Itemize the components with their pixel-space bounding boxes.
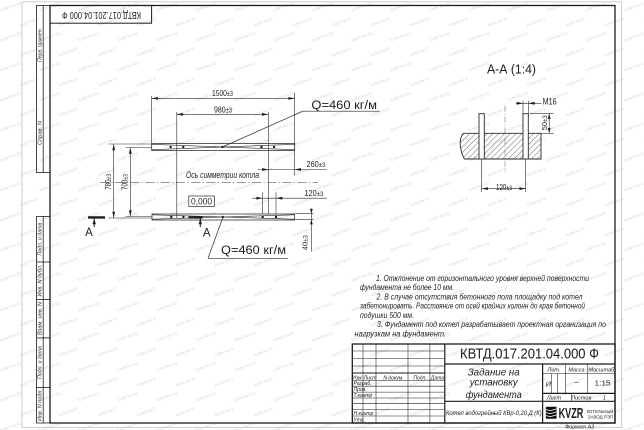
svg-text:Подп. и дата: Подп. и дата [37, 346, 43, 379]
svg-text:Т.контр: Т.контр [354, 393, 373, 399]
svg-text:И: И [546, 380, 552, 389]
svg-text:забетонировать. Расстояние от: забетонировать. Расстояние от осей крайн… [359, 302, 585, 311]
svg-text:Лит.: Лит. [547, 367, 561, 373]
svg-text:подушки 500 мм.: подушки 500 мм. [360, 311, 414, 320]
svg-text:Листов: Листов [570, 396, 591, 402]
svg-text:Лист: Лист [546, 396, 562, 402]
svg-text:2. В случае отсутствия бетонно: 2. В случае отсутствия бетонного пола пл… [376, 292, 583, 301]
svg-text:Масса: Масса [568, 367, 584, 373]
svg-text:Подп. и дата: Подп. и дата [37, 222, 43, 255]
svg-text:Инв. N подл.: Инв. N подл. [37, 389, 43, 421]
svg-text:Подп.: Подп. [413, 375, 426, 381]
svg-text:А-А (1:4): А-А (1:4) [487, 61, 536, 76]
svg-text:50±3: 50±3 [540, 115, 549, 131]
svg-text:Справ. N: Справ. N [37, 121, 43, 145]
svg-text:1. Отклонение от горизонтально: 1. Отклонение от горизонтального уровня … [376, 274, 590, 283]
svg-text:Утв.: Утв. [354, 417, 365, 423]
svg-text:Перв. примен.: Перв. примен. [37, 28, 43, 62]
svg-text:фундамента: фундамента [466, 389, 522, 401]
svg-text:А: А [203, 228, 211, 240]
svg-text:KVZR: KVZR [559, 406, 584, 422]
svg-text:N докум.: N докум. [383, 375, 403, 381]
svg-text:700±3: 700±3 [121, 174, 130, 190]
svg-text:А: А [85, 227, 93, 239]
svg-text:120±3: 120±3 [304, 189, 323, 198]
svg-text:КВТД.017.201.04.000 Ф: КВТД.017.201.04.000 Ф [460, 346, 599, 363]
svg-text:Взам. инв. N: Взам. инв. N [37, 302, 43, 335]
svg-text:Формат А3: Формат А3 [565, 425, 595, 430]
svg-text:1:15: 1:15 [595, 381, 611, 388]
svg-text:40±3: 40±3 [301, 235, 310, 251]
svg-text:ЗАВОД РЭП: ЗАВОД РЭП [588, 414, 614, 420]
svg-text:установку: установку [469, 376, 519, 388]
svg-text:Масштаб: Масштаб [588, 367, 615, 373]
svg-text:нагрузкам на фундамент.: нагрузкам на фундамент. [355, 329, 447, 338]
svg-text:Инв. N дубл.: Инв. N дубл. [37, 265, 43, 297]
svg-text:120±3: 120±3 [496, 183, 512, 192]
svg-text:М16: М16 [543, 97, 557, 107]
svg-text:0,000: 0,000 [191, 196, 212, 207]
svg-text:Q=460 кг/м: Q=460 кг/м [221, 245, 286, 257]
svg-text:КВТД.017.201.04.000 Ф: КВТД.017.201.04.000 Ф [62, 9, 141, 21]
svg-text:Н.контр: Н.контр [354, 411, 374, 417]
svg-text:260±3: 260±3 [307, 160, 326, 169]
svg-text:1: 1 [603, 396, 606, 402]
svg-text:Q=460 кг/м: Q=460 кг/м [311, 100, 377, 112]
svg-text:Котел водогрейный КВр-0,20 Д (: Котел водогрейный КВр-0,20 Д (К) [446, 409, 542, 417]
svg-text:Ось симметрии котла: Ось симметрии котла [186, 170, 259, 180]
svg-text:Дата: Дата [430, 375, 444, 381]
svg-text:фундамента не более 10 мм.: фундамента не более 10 мм. [360, 283, 454, 292]
svg-text:3. Фундамент под котел разраба: 3. Фундамент под котел разрабатывает про… [377, 320, 607, 329]
svg-text:780±3: 780±3 [104, 174, 113, 190]
